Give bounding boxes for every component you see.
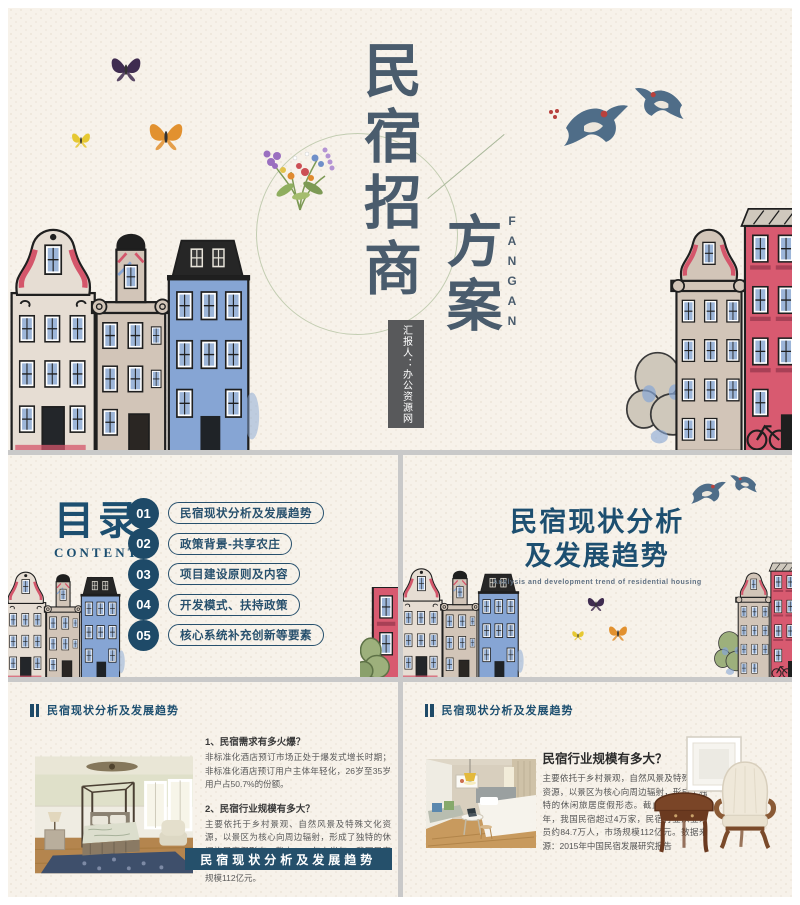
butterfly-orange-icon [607,623,629,642]
armchair-illustration [711,756,779,850]
decor-line [427,134,504,199]
houses-illustration-right [594,190,792,450]
section-title-line1: 民宿现状分析 [403,505,793,539]
swallow-icon-small [633,84,687,122]
header-bars-icon [425,704,434,717]
presenter-label: 汇报人：办公资源网 [388,320,424,428]
toc-item[interactable]: 04 开发模式、扶持政策 [128,590,324,621]
swallow-icon-small [729,473,759,494]
section-subtitle-en: Analysis and development trend of reside… [403,579,793,586]
cover-title: 民宿招商 [358,40,416,340]
butterfly-yellow-icon [571,629,585,641]
detail-heading: 民宿行业规模有多大？ [543,748,708,767]
butterfly-purple-icon [586,595,606,612]
toc-number-badge: 03 [128,559,159,590]
toc-item-label: 核心系统补充创新等要素 [168,624,324,646]
ceiling-fan [86,762,137,772]
slide-detail-left[interactable]: 民宿现状分析及发展趋势 [8,682,398,897]
toc-item-label: 民宿现状分析及发展趋势 [168,502,324,524]
detail-text-block: 1、民宿需求有多火爆？ 非标准化酒店预订市场正处于爆发式增长时期；非标准化酒店预… [205,734,391,894]
header-title: 民宿现状分析及发展趋势 [47,702,179,718]
toc-item[interactable]: 02 政策背景-共享农庄 [128,529,324,560]
section-title-line2: 及发展趋势 [403,539,793,573]
toc-number-badge: 02 [128,528,159,559]
toc-item-label: 项目建设原则及内容 [168,563,300,585]
cover-title-2: 方案 [442,212,498,352]
slide-cover[interactable]: 民宿招商 方案 FANGAN 汇报人：办公资源网 [8,8,792,450]
console-table-illustration [653,792,715,854]
swallow-icon [689,479,727,506]
slides-grid: 民宿招商 方案 FANGAN 汇报人：办公资源网 目录 [8,8,792,897]
header-title: 民宿现状分析及发展趋势 [442,702,574,718]
toc-number-badge: 01 [128,498,159,529]
header-bars-icon [30,704,39,717]
houses-illustration-left [8,190,270,450]
toc-number-badge: 05 [128,620,159,651]
contents-list: 01 民宿现状分析及发展趋势 02 政策背景-共享农庄 03 项目建设原则及内容… [128,498,324,651]
section-title: 民宿现状分析 及发展趋势 [403,505,793,573]
swallow-icon [560,100,630,150]
slide-header: 民宿现状分析及发展趋势 [425,702,574,718]
toc-item[interactable]: 05 核心系统补充创新等要素 [128,620,324,651]
house-partial-right [360,587,398,677]
slide-detail-right[interactable]: 民宿现状分析及发展趋势 [403,682,793,897]
slide-header: 民宿现状分析及发展趋势 [30,702,179,718]
bedroom-photo [35,756,193,874]
slide-contents[interactable]: 目录 CONTENTS 01 民宿现状分析及发展趋势 02 政策背景-共享农庄 … [8,455,398,677]
question-1-title: 1、民宿需求有多火爆？ [205,734,391,748]
berries-decor [548,108,562,122]
toc-item-label: 开发模式、扶持政策 [168,594,300,616]
butterfly-orange-icon [146,118,186,152]
slide-section-header[interactable]: 民宿现状分析 及发展趋势 Analysis and development tr… [403,455,793,677]
question-1-body: 非标准化酒店预订市场正处于爆发式增长时期；非标准化酒店预订用户主体年轻化，26岁… [205,751,391,792]
butterfly-purple-icon [108,53,144,83]
bottom-banner: 民宿现状分析及发展趋势 [185,848,392,870]
cover-title-latin: FANGAN [505,214,519,334]
butterfly-yellow-icon [70,130,92,149]
toc-item-label: 政策背景-共享农庄 [168,533,292,555]
hotelroom-photo [426,759,536,848]
toc-number-badge: 04 [128,589,159,620]
houses-illustration-left [8,553,130,677]
toc-item[interactable]: 01 民宿现状分析及发展趋势 [128,498,324,529]
question-2-title: 2、民宿行业规模有多大？ [205,801,391,815]
toc-item[interactable]: 03 项目建设原则及内容 [128,559,324,590]
template-preview-page: 民宿招商 方案 FANGAN 汇报人：办公资源网 目录 [0,0,800,905]
